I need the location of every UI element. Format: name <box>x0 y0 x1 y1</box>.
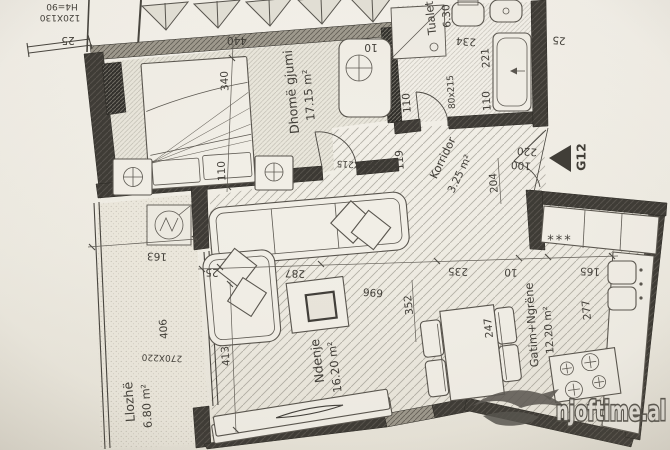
bed <box>141 56 256 189</box>
vent-symbol <box>147 205 191 245</box>
dim-wall-living: 25 <box>205 266 219 278</box>
dim-entry-b: 100 <box>511 158 532 171</box>
bathtub <box>493 33 531 111</box>
dim-toilet-left: 110 <box>400 93 413 114</box>
unit-label: G12 <box>574 143 589 171</box>
dim-corridor-len: 204 <box>487 172 500 193</box>
dim-loggia-window: 270X220 <box>141 351 182 362</box>
dim-tub-length: 221 <box>479 48 492 69</box>
dim-living-depth: 352 <box>402 294 416 315</box>
stove <box>549 348 621 403</box>
dim-loggia-top: 163 <box>147 250 167 263</box>
dim-sofa-span: 287 <box>285 267 305 280</box>
dim-loggia-len: 406 <box>157 318 170 339</box>
dim-kitchen-span: 165 <box>580 265 600 278</box>
wall-right-top <box>531 0 548 127</box>
dim-wall-tr: 25 <box>552 34 566 47</box>
dim-bedroom-width: 440 <box>227 34 247 46</box>
nightstand-right <box>255 156 293 190</box>
dim-parapet: H4=90 <box>46 1 78 11</box>
coffee-table <box>286 277 349 334</box>
dim-wall-tl: 25 <box>61 34 74 46</box>
dim-dining-span: 235 <box>448 265 468 278</box>
nightstand-left <box>113 159 152 195</box>
chair <box>425 359 449 397</box>
loggia-name: Llozhë <box>120 381 138 423</box>
dim-bed-length: 340 <box>218 71 231 92</box>
dim-living-span: 696 <box>362 285 383 298</box>
dim-niche: 10 <box>364 41 377 53</box>
watermark-text: njoftime.al <box>556 396 666 427</box>
fridge-mark: *** <box>547 234 573 249</box>
bidet <box>490 0 522 22</box>
dim-corridor-width: 119 <box>393 150 406 171</box>
toilet <box>452 0 484 26</box>
dim-table-len: 247 <box>482 317 496 338</box>
dim-living-left: 413 <box>219 345 233 366</box>
dim-entry-a: 220 <box>517 144 538 157</box>
wall-loggia-stub-top <box>191 184 209 250</box>
dining-table <box>440 305 505 401</box>
floor-plan-photo: G12 H4=90 120X130 25 440 340 Dhomë gjumi… <box>0 0 670 450</box>
dim-bedroom-window: 120X130 <box>39 12 80 22</box>
dim-toilet-right: 110 <box>480 91 493 112</box>
dim-kitchen-depth: 277 <box>580 299 594 320</box>
floor-plan-svg: G12 H4=90 120X130 25 440 340 Dhomë gjumi… <box>0 0 670 450</box>
dim-gap: 10 <box>504 266 518 278</box>
wall-loggia-stub-bottom <box>193 406 211 448</box>
dim-toilet-depth: 234 <box>455 34 476 47</box>
toilet-area: 6.30 <box>440 4 454 28</box>
dim-bed-width: 110 <box>215 161 228 182</box>
